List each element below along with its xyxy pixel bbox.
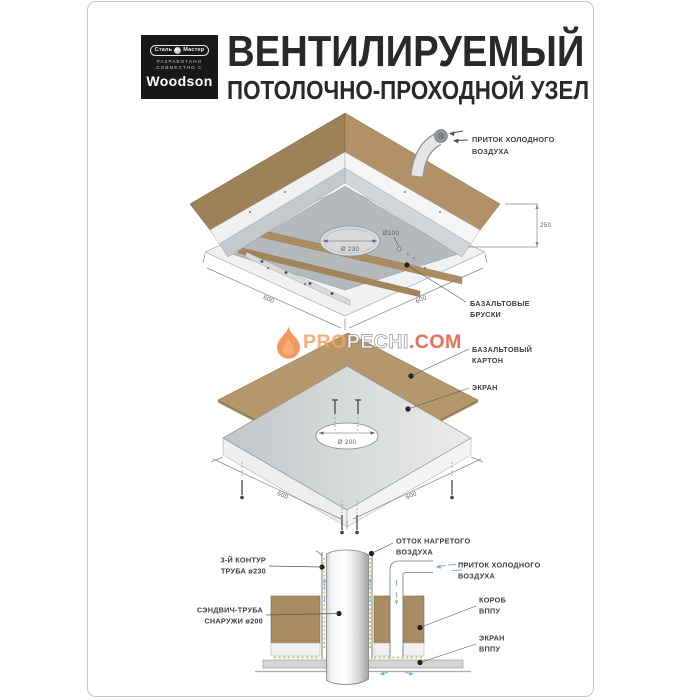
svg-text:СНАРУЖИ ø200: СНАРУЖИ ø200 (204, 617, 263, 626)
label-cold-air-intake-top: ПРИТОК ХОЛОДНОГО ВОЗДУХА (472, 135, 555, 156)
hole-230: Ø 230 (320, 226, 380, 256)
svg-text:БАЗАЛЬТОВЫЕ: БАЗАЛЬТОВЫЕ (470, 299, 530, 308)
product-infographic: Сталь Мастер РАЗРАБОТАНО СОВМЕСТНО С Woo… (0, 0, 700, 700)
cold-air-arrows (449, 131, 468, 143)
svg-text:ОТТОК НАГРЕТОГО: ОТТОК НАГРЕТОГО (396, 537, 470, 546)
bottom-section-diagram: ОТТОК НАГРЕТОГО ВОЗДУХА ПРИТОК ХОЛОДНОГО… (197, 537, 541, 685)
svg-text:СЭНДВИЧ-ТРУБА: СЭНДВИЧ-ТРУБА (197, 606, 264, 615)
svg-text:ВОЗДУХА: ВОЗДУХА (396, 548, 434, 557)
dim-250: 250 (540, 222, 552, 229)
label-cold-air-intake-bottom: ПРИТОК ХОЛОДНОГО ВОЗДУХА (458, 561, 541, 581)
hole-200: Ø 200 (316, 423, 378, 449)
svg-text:ВППУ: ВППУ (479, 645, 501, 654)
svg-text:3-Й КОНТУР: 3-Й КОНТУР (220, 556, 266, 565)
svg-text:ВОЗДУХА: ВОЗДУХА (458, 572, 496, 581)
svg-text:ПРИТОК ХОЛОДНОГО: ПРИТОК ХОЛОДНОГО (472, 135, 555, 144)
svg-text:КОРОБ: КОРОБ (479, 596, 506, 605)
middle-exploded-diagram: Ø 200 600 600 (211, 333, 532, 534)
svg-text:КАРТОН: КАРТОН (472, 356, 503, 365)
label-hot-air-outflow: ОТТОК НАГРЕТОГО ВОЗДУХА (369, 537, 471, 557)
svg-text:ВППУ: ВППУ (479, 607, 501, 616)
svg-text:ЭКРАН: ЭКРАН (472, 383, 498, 392)
svg-text:ПРИТОК ХОЛОДНОГО: ПРИТОК ХОЛОДНОГО (458, 561, 541, 570)
dim-hole-100: Ø100 (383, 230, 400, 237)
svg-text:БАЗАЛЬТОВЫЙ: БАЗАЛЬТОВЫЙ (472, 345, 532, 354)
svg-text:ТРУБА ø230: ТРУБА ø230 (221, 567, 266, 576)
top-isometric-diagram: Ø 230 Ø100 (190, 113, 555, 330)
label-box-vppu: КОРОБ ВППУ (417, 596, 506, 631)
diagram-canvas: Ø 230 Ø100 (0, 0, 700, 700)
sandwich-pipe (327, 550, 369, 684)
svg-text:БРУСКИ: БРУСКИ (470, 310, 501, 319)
dim-hole-200: Ø 200 (338, 439, 357, 446)
dim-hole-230: Ø 230 (341, 246, 360, 253)
dim-600-left: 600 (262, 294, 275, 305)
svg-text:ВОЗДУХА: ВОЗДУХА (472, 147, 510, 156)
svg-text:ЭКРАН: ЭКРАН (479, 634, 505, 643)
label-third-contour: 3-Й КОНТУР ТРУБА ø230 (220, 556, 324, 576)
